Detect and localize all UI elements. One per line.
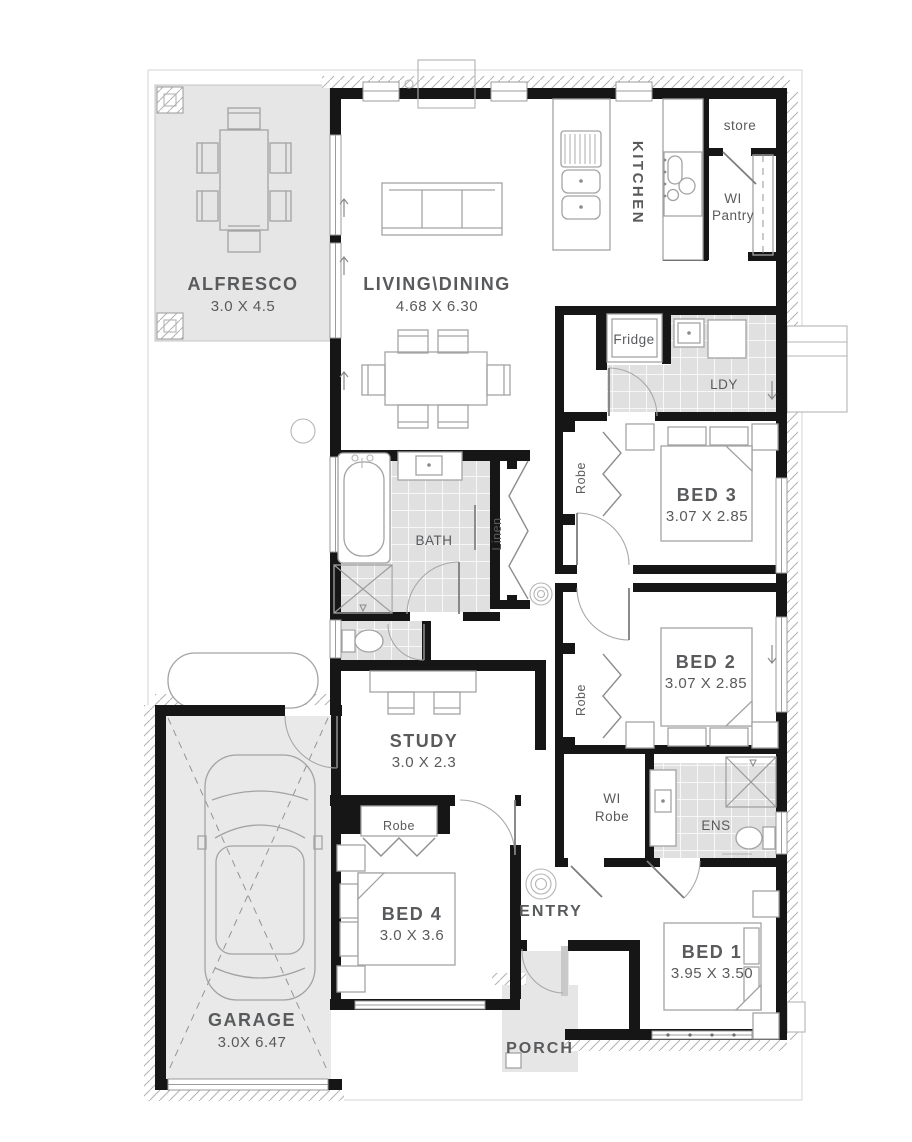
service-point: [291, 419, 315, 443]
garage-label: GARAGE: [208, 1010, 296, 1030]
study-room: [370, 671, 476, 714]
direction-arrow: [340, 372, 348, 390]
kitchen-label: KITCHEN: [629, 141, 646, 225]
alfresco-dims: 3.0 X 4.5: [211, 298, 276, 315]
toilet-icon: [342, 630, 383, 652]
linen-label: Linen: [490, 517, 504, 550]
direction-arrow: [768, 645, 776, 663]
study-label: STUDY: [390, 731, 459, 751]
hall-light: [530, 583, 552, 605]
entry-label: ENTRY: [519, 903, 583, 920]
porch-label: PORCH: [506, 1040, 574, 1057]
bed4-label: BED 4: [382, 904, 443, 924]
floor-plan-drawing: ALFRESCO 3.0 X 4.5 LIVING\DINING 4.68 X …: [0, 0, 912, 1142]
fridge-label: Fridge: [613, 332, 654, 347]
robe-doors: [363, 838, 435, 856]
bed4-dims: 3.0 X 3.6: [380, 927, 445, 944]
wi-robe-door: [571, 866, 602, 897]
bed2-dims: 3.07 X 2.85: [665, 675, 747, 692]
entry-light: [526, 869, 556, 899]
dining-table-icon: [362, 330, 510, 428]
bathtub-icon: [338, 453, 390, 563]
linen-doors: [509, 461, 528, 599]
vanity-icon: [398, 452, 462, 480]
robe-doors: [603, 432, 621, 516]
laundry-label: LDY: [710, 377, 738, 392]
study-dims: 3.0 X 2.3: [392, 754, 457, 771]
ens-vanity-icon: [650, 770, 676, 846]
living-dining-label: LIVING\DINING: [363, 274, 511, 294]
pantry-shelf: [753, 155, 773, 255]
robe-doors: [603, 654, 621, 738]
bed4-room: [337, 800, 515, 992]
living-dining-dims: 4.68 X 6.30: [396, 298, 478, 315]
wi-pantry-label-1: WI: [724, 191, 742, 206]
external-unit: [787, 1002, 805, 1032]
bed4-robe-label: Robe: [383, 819, 415, 833]
wi-robe-label-2: Robe: [595, 809, 629, 824]
bed2-robe-label: Robe: [574, 684, 588, 716]
sofa-icon: [382, 183, 502, 235]
water-tank: [168, 653, 318, 708]
bed3-label: BED 3: [677, 485, 738, 505]
floor-plan-page: ALFRESCO 3.0 X 4.5 LIVING\DINING 4.68 X …: [0, 0, 912, 1142]
bed2-label: BED 2: [676, 652, 737, 672]
garage-dims: 3.0X 6.47: [218, 1034, 287, 1051]
bath-label: BATH: [415, 533, 452, 548]
post: [157, 313, 183, 339]
bed1-door: [647, 861, 684, 898]
laundry-landing: [787, 326, 847, 412]
laundry-tiles-2: [607, 365, 671, 412]
store-label: store: [724, 118, 757, 133]
wi-robe-label-1: WI: [603, 791, 621, 806]
post: [157, 87, 183, 113]
desk-icon: [370, 671, 476, 714]
alfresco-label: ALFRESCO: [188, 274, 299, 294]
ens-label: ENS: [701, 818, 730, 833]
bed3-dims: 3.07 X 2.85: [666, 508, 748, 525]
store-door: [723, 152, 756, 184]
wi-pantry-label-2: Pantry: [712, 208, 754, 223]
bed1-label: BED 1: [682, 942, 743, 962]
bed3-robe-label: Robe: [574, 462, 588, 494]
bed1-dims: 3.95 X 3.50: [671, 965, 753, 982]
front-door-leaf: [561, 946, 568, 996]
